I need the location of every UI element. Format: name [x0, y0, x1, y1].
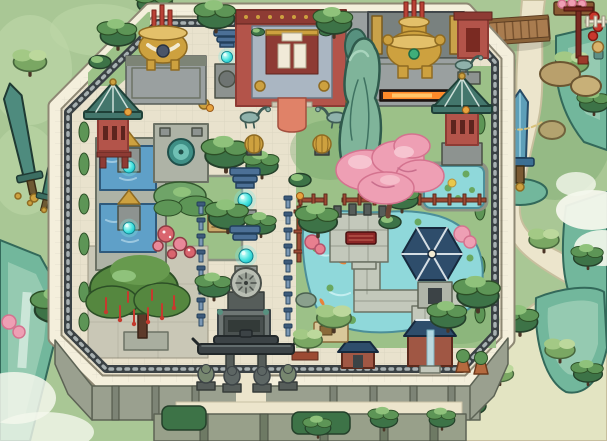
brazier: [255, 81, 265, 91]
stone-clock-disc[interactable]: [228, 268, 264, 312]
white-fence: [585, 16, 607, 27]
guardian-lion: [279, 365, 297, 391]
map-canvas: [0, 0, 607, 441]
potted-bush: [251, 28, 264, 36]
spirit-orb[interactable]: [218, 48, 236, 66]
fountain-court[interactable]: [154, 124, 208, 182]
traveler-figure: [593, 42, 604, 60]
game-map-screen: [0, 0, 607, 441]
north-east-red-door: [454, 12, 492, 58]
hedge: [162, 406, 206, 430]
bull-medallion: [157, 45, 169, 57]
bush: [289, 174, 311, 187]
spirit-orb[interactable]: [120, 219, 139, 238]
guardian-lion: [253, 367, 271, 393]
scroll: [294, 44, 306, 68]
red-bench: [292, 352, 318, 360]
carpet-approach: [278, 98, 306, 132]
guardian-lion: [197, 365, 215, 391]
shrine-small: [338, 342, 378, 368]
spirit-orb[interactable]: [235, 245, 257, 267]
guardian-lion: [223, 367, 241, 393]
scroll: [278, 44, 290, 68]
jade-gem: [409, 49, 419, 59]
lotus-flower: [448, 179, 456, 187]
altar-plaque: [282, 33, 302, 41]
guqin[interactable]: [346, 232, 376, 244]
shrine-waterfall: [427, 330, 434, 368]
brazier: [319, 81, 329, 91]
bush: [89, 56, 111, 69]
